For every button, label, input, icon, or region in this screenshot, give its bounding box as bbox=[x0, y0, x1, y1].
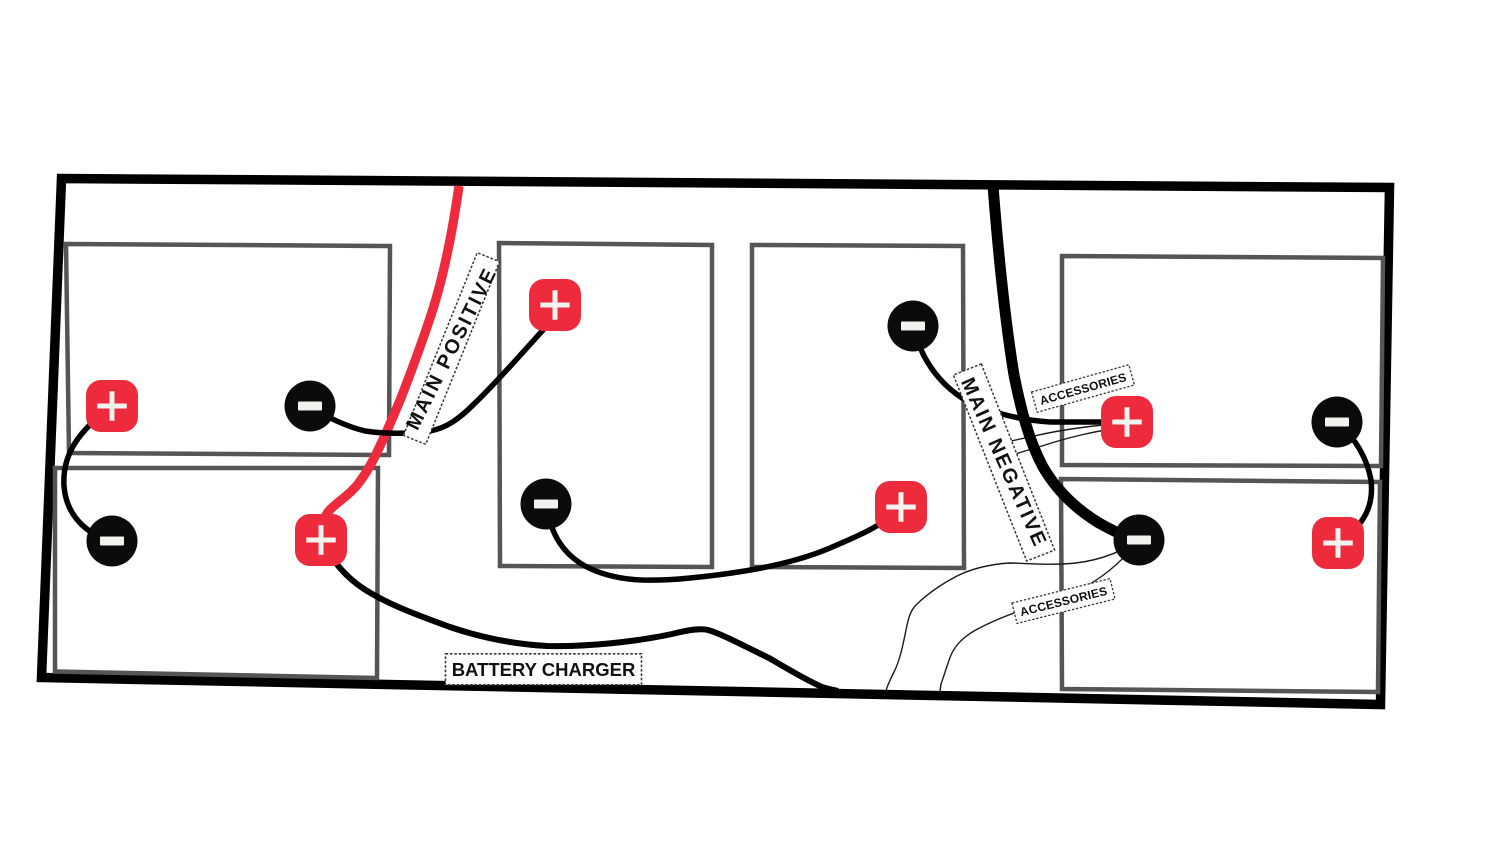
svg-text:BATTERY CHARGER: BATTERY CHARGER bbox=[452, 659, 636, 680]
